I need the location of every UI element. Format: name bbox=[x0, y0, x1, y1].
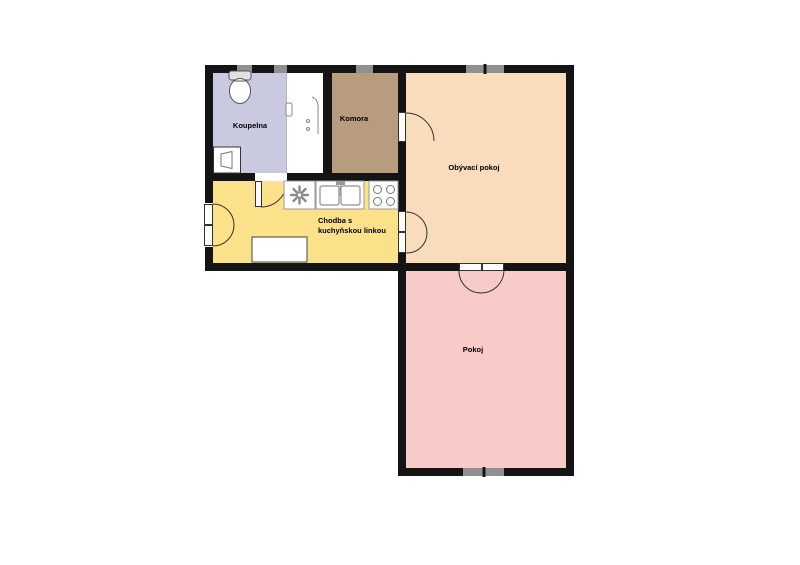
wall-living-left-middle bbox=[398, 142, 406, 211]
entrance-door-leaf-top bbox=[204, 204, 213, 225]
window-mullion bbox=[482, 467, 485, 477]
wall-bathroom-bottom-left bbox=[205, 173, 255, 181]
floor-plan: Koupelna Komora Obývací pokoj Chodba s k… bbox=[0, 0, 800, 565]
label-komora: Komora bbox=[314, 114, 394, 124]
pokoj-door-leaf-right bbox=[482, 263, 504, 271]
wall-middle-right-segment bbox=[504, 263, 574, 271]
komora-door-leaf bbox=[398, 112, 406, 142]
wall-left-upper bbox=[205, 65, 213, 203]
wall-middle-left-segment bbox=[205, 263, 459, 271]
label-koupelna: Koupelna bbox=[210, 121, 290, 131]
bathroom-window-2 bbox=[271, 65, 290, 73]
living-door-leaf-bottom bbox=[398, 232, 406, 253]
wall-komora-left bbox=[323, 73, 332, 181]
living-room-window bbox=[463, 65, 507, 73]
pokoj-window bbox=[460, 468, 507, 476]
label-obyvaci-pokoj: Obývací pokoj bbox=[414, 163, 534, 173]
wall-living-left-upper bbox=[398, 73, 406, 112]
wall-pokoj-left bbox=[398, 271, 406, 476]
label-pokoj: Pokoj bbox=[433, 345, 513, 355]
bathroom-door-leaf bbox=[255, 181, 262, 207]
label-chodba-line2: kuchyňskou linkou bbox=[318, 226, 386, 236]
label-chodba: Chodba s kuchyňskou linkou bbox=[318, 216, 386, 236]
bathroom-window-1 bbox=[234, 65, 255, 73]
label-chodba-line1: Chodba s bbox=[318, 216, 386, 226]
wall-living-left-lower bbox=[398, 253, 406, 263]
room-pokoj-floor bbox=[406, 271, 566, 468]
entrance-door-leaf-bottom bbox=[204, 225, 213, 246]
living-door-leaf-top bbox=[398, 211, 406, 232]
komora-window bbox=[353, 65, 376, 73]
wall-top bbox=[205, 65, 574, 73]
window-mullion bbox=[484, 64, 487, 74]
pokoj-door-leaf-left bbox=[459, 263, 482, 271]
wall-bathroom-bottom-right bbox=[287, 173, 406, 181]
